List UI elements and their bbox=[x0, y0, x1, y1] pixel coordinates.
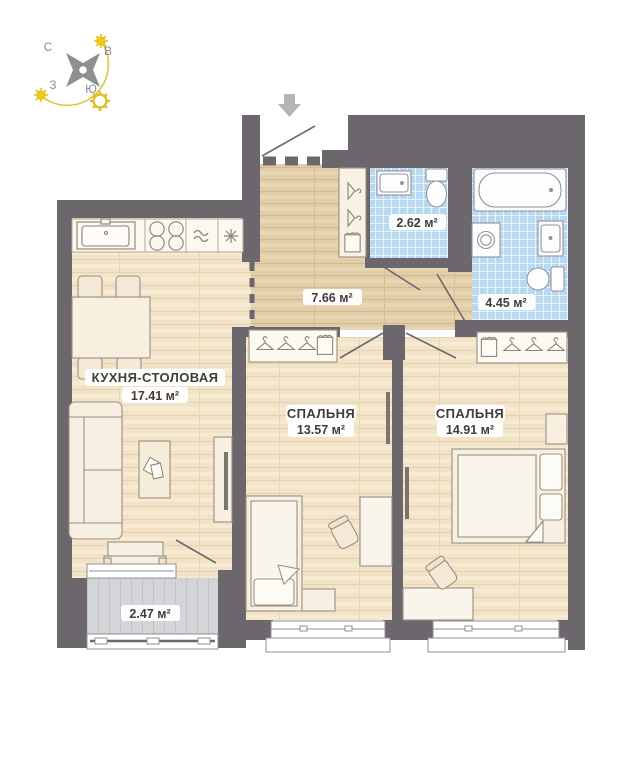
toilet-icon bbox=[426, 169, 447, 207]
bathroom-small-area: 2.62 м² bbox=[396, 216, 437, 230]
bedroom2-name: СПАЛЬНЯ bbox=[436, 406, 504, 421]
tv-icon bbox=[224, 452, 228, 510]
bathtub-icon bbox=[474, 169, 566, 211]
hallway-label: 7.66 м² bbox=[303, 289, 362, 305]
sink-icon bbox=[377, 171, 411, 195]
bedroom1-area: 13.57 м² bbox=[297, 423, 345, 437]
nightstand bbox=[302, 589, 335, 611]
hallway bbox=[339, 168, 366, 257]
bedroom1-name: СПАЛЬНЯ bbox=[287, 406, 355, 421]
single-bed bbox=[246, 496, 302, 611]
hallway-area: 7.66 м² bbox=[311, 291, 352, 305]
bathroom-large-label: 4.45 м² bbox=[478, 294, 535, 310]
compass: С В З Ю bbox=[34, 34, 112, 111]
dining-table bbox=[72, 297, 150, 358]
compass-east: В bbox=[104, 46, 112, 58]
compass-north: С bbox=[44, 42, 52, 54]
entry-door-swing bbox=[262, 126, 315, 156]
compass-west: З bbox=[50, 80, 57, 92]
kitchen-name: КУХНЯ-СТОЛОВАЯ bbox=[92, 370, 219, 385]
sun-icon bbox=[34, 88, 48, 102]
dining-chair bbox=[78, 276, 102, 298]
kitchen-area: 17.41 м² bbox=[131, 389, 179, 403]
toilet-icon bbox=[527, 267, 564, 291]
desk bbox=[403, 588, 473, 620]
sink-icon bbox=[538, 221, 563, 256]
desk bbox=[360, 497, 392, 566]
balcony-window-band bbox=[87, 564, 176, 578]
wardrobe bbox=[249, 330, 337, 362]
hall-closet bbox=[339, 168, 366, 257]
box-icon bbox=[345, 233, 360, 252]
dining-chair bbox=[116, 276, 140, 298]
fridge-icon bbox=[224, 229, 238, 243]
bedroom2-area: 14.91 м² bbox=[446, 423, 494, 437]
balcony-label: 2.47 м² bbox=[121, 605, 180, 621]
floor-plan-page: С В З Ю КУХНЯ-СТОЛОВАЯ 17.41 м² 7.66 м² … bbox=[0, 0, 639, 768]
compass-star-icon bbox=[66, 53, 100, 87]
entrance-arrow-icon bbox=[278, 94, 301, 117]
floor-plan: С В З Ю КУХНЯ-СТОЛОВАЯ 17.41 м² 7.66 м² … bbox=[0, 0, 639, 768]
bathroom-large-area: 4.45 м² bbox=[485, 296, 526, 310]
bedroom1-label: СПАЛЬНЯ 13.57 м² bbox=[286, 405, 356, 437]
coffee-table bbox=[139, 441, 170, 498]
box-icon bbox=[317, 335, 332, 354]
bedroom2-label: СПАЛЬНЯ 14.91 м² bbox=[435, 405, 505, 437]
nightstand bbox=[546, 414, 567, 444]
bedroom2-window bbox=[428, 621, 565, 652]
tv-icon bbox=[386, 392, 390, 444]
double-bed bbox=[452, 449, 565, 543]
tv-icon bbox=[405, 467, 409, 519]
tv-stand bbox=[214, 437, 232, 522]
balcony-railing bbox=[87, 634, 218, 649]
balcony-area: 2.47 м² bbox=[129, 607, 170, 621]
compass-south: Ю bbox=[85, 84, 97, 96]
bathroom-small-label: 2.62 м² bbox=[389, 214, 446, 230]
washing-machine-icon bbox=[472, 223, 500, 257]
sofa bbox=[69, 402, 122, 539]
bedroom1-window bbox=[266, 621, 390, 652]
box-icon bbox=[481, 337, 496, 356]
wardrobe bbox=[477, 332, 567, 363]
